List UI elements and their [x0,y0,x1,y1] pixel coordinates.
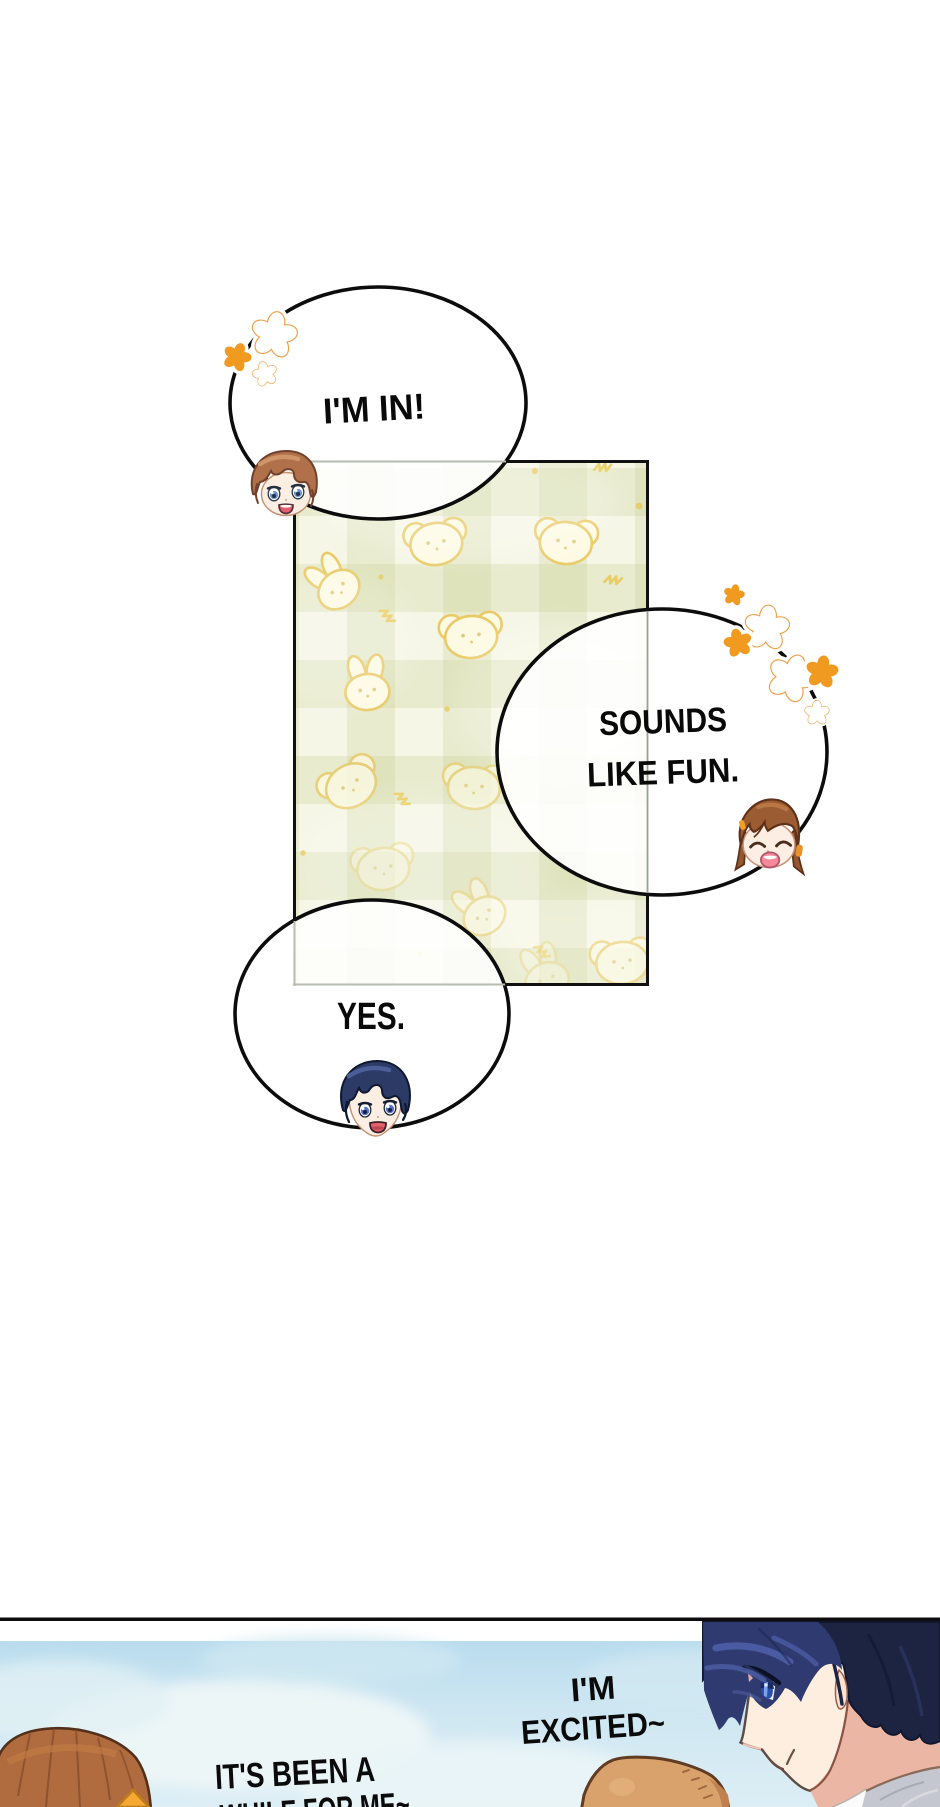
svg-text:YES.: YES. [337,996,405,1038]
svg-text:I'M: I'M [570,1668,617,1708]
svg-text:LIKE FUN.: LIKE FUN. [586,751,739,794]
svg-text:I'M IN!: I'M IN! [322,385,426,431]
svg-text:SOUNDS: SOUNDS [598,701,727,743]
